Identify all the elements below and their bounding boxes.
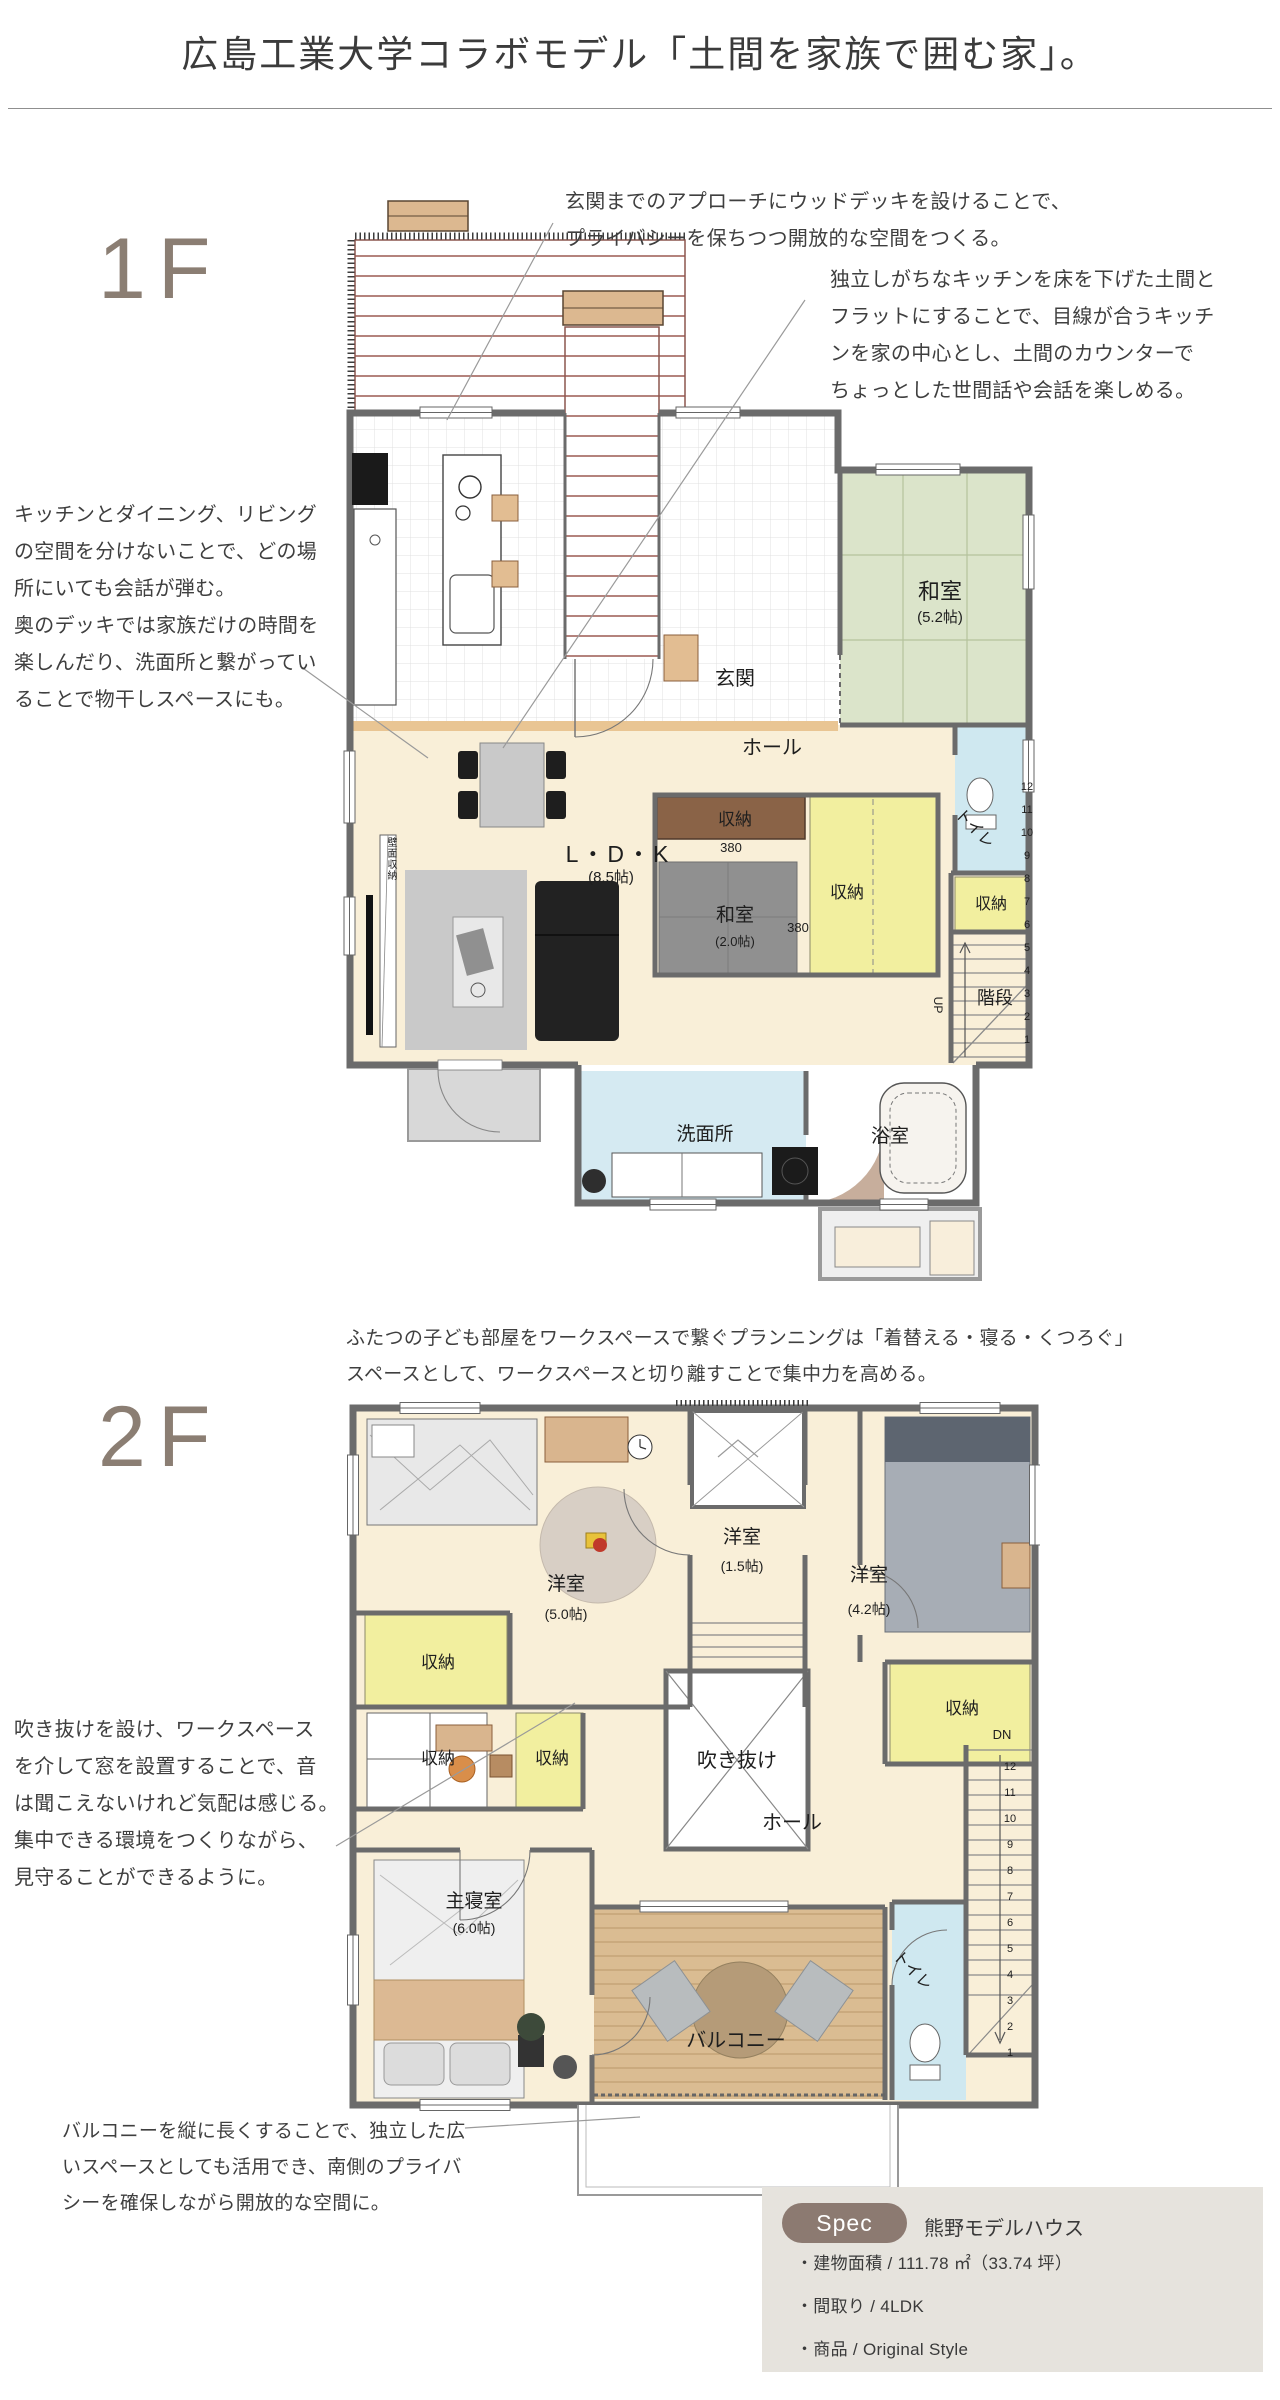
room-label-washroom: 洗面所 <box>642 1119 768 1146</box>
room-label-kids2: 洋室 <box>824 1560 914 1587</box>
stair-numbers-1f: 12 11 10 9 8 7 6 5 4 3 2 1 <box>1016 776 1038 1052</box>
spec-model-name: 熊野モデルハウス <box>924 2212 1084 2241</box>
wall-storage-label: 壁面収納 <box>383 824 398 894</box>
room-size-ldk: (8.5帖) <box>556 866 666 887</box>
stair-numbers-2f: 12 11 10 9 8 7 6 5 4 3 2 1 <box>999 1754 1021 2066</box>
room-size-washitsu-52: (5.2帖) <box>850 606 1030 627</box>
annotation-approach: 玄関までのアプローチにウッドデッキを設けることで、 プライバシーを保ちつつ開放的… <box>565 184 1125 258</box>
annotation-balcony: バルコニーを縦に長くすることで、独立した広 いスペースとしても活用でき、南側のプ… <box>62 2114 532 2222</box>
room-label-ldk: L・D・K <box>536 835 701 869</box>
balcony-edge <box>578 2095 898 2195</box>
room-label-balcony: バルコニー <box>654 2024 818 2053</box>
back-deck <box>408 1060 540 1141</box>
room-label-closet-center-2f: 収納 <box>510 1744 594 1769</box>
room-label-closet-brown: 収納 <box>693 805 777 830</box>
room-label-closet-left-2f: 収納 <box>396 1648 480 1673</box>
dimension-380-a: 380 <box>704 840 758 855</box>
room-size-kids2: (4.2帖) <box>818 1599 920 1619</box>
room-label-kids1: 洋室 <box>518 1569 614 1596</box>
spec-item-product: ・商品 / Original Style <box>796 2335 968 2360</box>
page: { "title": "広島工業大学コラボモデル「土間を家族で囲む家」。", "… <box>0 0 1280 2400</box>
room-label-void: 吹き抜け <box>670 1744 804 1773</box>
room-label-workspace: 洋室 <box>698 1522 786 1549</box>
annotation-ldk: キッチンとダイニング、リビング の空間を分けないことで、どの場 所にいても会話が… <box>14 497 359 719</box>
page-title: 広島工業大学コラボモデル「土間を家族で囲む家」。 <box>0 24 1280 78</box>
room-label-genkan: 玄関 <box>688 662 782 691</box>
room-size-workspace: (1.5帖) <box>690 1556 794 1576</box>
room-label-washitsu-52: 和室 <box>850 574 1030 606</box>
toilet-fixture-2f <box>910 2024 940 2080</box>
room-label-closet-left-small-2f: 収納 <box>396 1744 480 1769</box>
title-divider <box>8 108 1272 109</box>
annotation-doma: 独立しがちなキッチンを床を下げた土間と フラットにすることで、目線が合うキッチ … <box>830 262 1280 410</box>
floorplan-2f-drawing <box>340 1395 1040 2215</box>
room-label-hall-1f: ホール <box>716 731 828 760</box>
stairs-up-label: UP <box>931 990 945 1020</box>
annotation-void: 吹き抜けを設け、ワークスペース を介して窓を設置することで、音 は聞こえないけれ… <box>14 1712 359 1897</box>
spec-badge: Spec <box>782 2203 907 2243</box>
room-label-washitsu-20: 和室 <box>688 900 782 927</box>
room-label-bath: 浴室 <box>843 1121 937 1148</box>
annotation-kids-rooms: ふたつの子ども部屋をワークスペースで繋ぐプランニングは「着替える・寝る・くつろぐ… <box>346 1321 1280 1393</box>
outdoor-bench-area <box>820 1209 980 1279</box>
room-label-hall-2f: ホール <box>740 1806 844 1835</box>
room-label-master: 主寝室 <box>422 1886 526 1913</box>
room-size-master: (6.0帖) <box>418 1918 530 1938</box>
room-size-kids1: (5.0帖) <box>512 1604 620 1624</box>
spec-item-layout: ・間取り / 4LDK <box>796 2292 924 2317</box>
spec-item-area: ・建物面積 / 111.78 ㎡（33.74 坪） <box>796 2249 1072 2274</box>
stairs-dn-label: DN <box>982 1727 1022 1742</box>
floor-2f-label: 2F <box>98 1394 222 1480</box>
dimension-380-b: 380 <box>772 920 824 935</box>
room-label-closet-center-1f: 収納 <box>813 878 881 903</box>
floor-1f-label: 1F <box>98 226 222 312</box>
room-label-closet-right-2f: 収納 <box>920 1694 1004 1719</box>
spec-box: Spec 熊野モデルハウス ・建物面積 / 111.78 ㎡（33.74 坪） … <box>762 2187 1263 2372</box>
floorplan-2f <box>340 1395 1040 2215</box>
